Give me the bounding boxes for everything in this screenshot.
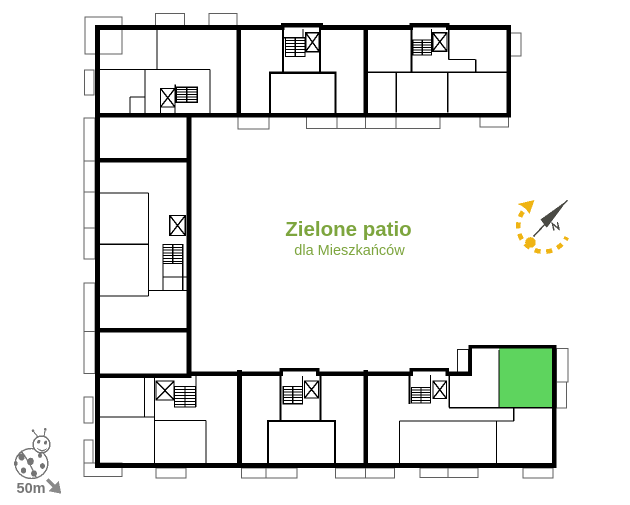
svg-text:50m: 50m	[17, 481, 46, 497]
svg-text:dla Mieszkańców: dla Mieszkańców	[294, 243, 405, 259]
svg-text:Zielone patio: Zielone patio	[285, 218, 411, 241]
